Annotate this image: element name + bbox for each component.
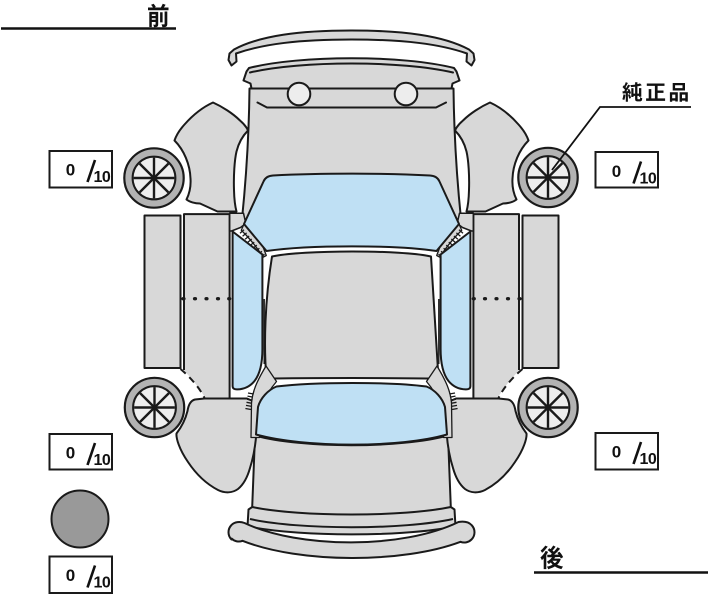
svg-text:10: 10 bbox=[640, 451, 657, 468]
svg-text:10: 10 bbox=[640, 171, 657, 188]
svg-text:0: 0 bbox=[66, 444, 75, 463]
svg-text:0: 0 bbox=[66, 566, 75, 585]
svg-text:10: 10 bbox=[94, 575, 111, 592]
svg-text:0: 0 bbox=[66, 161, 75, 180]
svg-text:0: 0 bbox=[612, 443, 621, 462]
svg-text:10: 10 bbox=[94, 169, 111, 186]
svg-text:0: 0 bbox=[612, 162, 621, 181]
svg-text:10: 10 bbox=[94, 452, 111, 469]
